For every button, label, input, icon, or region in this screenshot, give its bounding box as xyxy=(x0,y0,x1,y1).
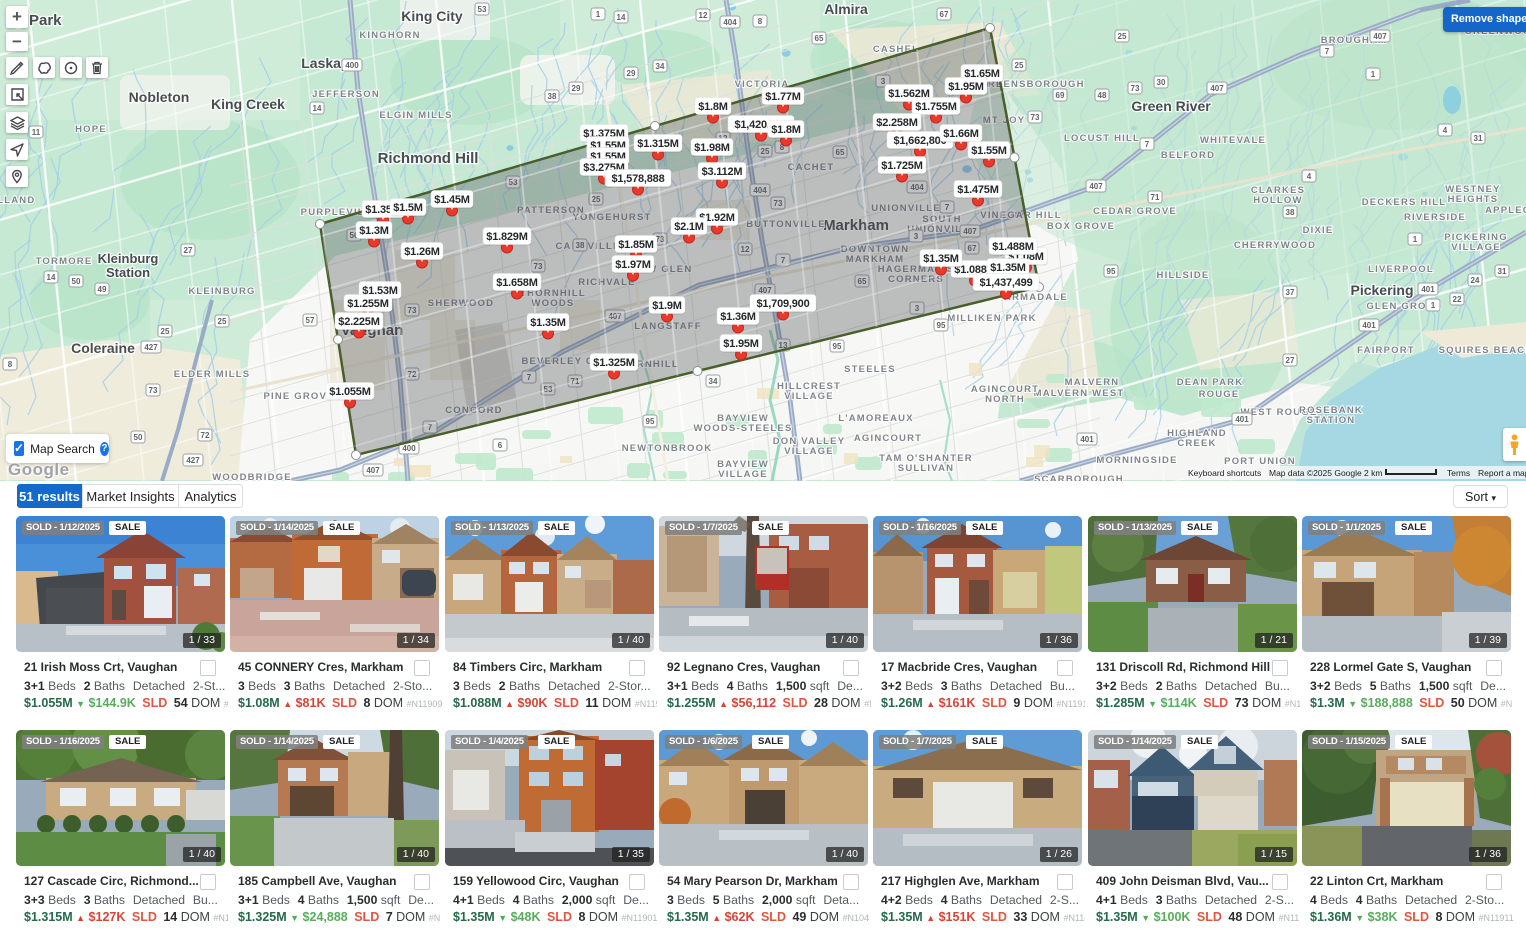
svg-text:HOLLAND: HOLLAND xyxy=(0,195,35,206)
svg-text:8: 8 xyxy=(8,360,13,369)
svg-text:53: 53 xyxy=(478,5,487,14)
svg-text:401: 401 xyxy=(1421,285,1435,294)
svg-text:1: 1 xyxy=(596,10,601,19)
svg-text:27: 27 xyxy=(1286,356,1295,365)
svg-text:SULLIVAN: SULLIVAN xyxy=(898,463,954,474)
svg-text:8: 8 xyxy=(758,17,763,26)
svg-text:FAIRPORT: FAIRPORT xyxy=(1357,345,1415,356)
svg-text:BELFORD: BELFORD xyxy=(1161,150,1215,161)
svg-text:29: 29 xyxy=(627,69,636,78)
svg-text:DECKERS HILL: DECKERS HILL xyxy=(1362,197,1447,208)
svg-text:ELGIN MILLS: ELGIN MILLS xyxy=(379,110,452,121)
svg-text:MORNINGSIDE: MORNINGSIDE xyxy=(1096,455,1177,466)
svg-text:MILLIKEN PARK: MILLIKEN PARK xyxy=(947,313,1036,324)
svg-text:Kleinburg: Kleinburg xyxy=(98,251,159,266)
svg-text:STATION: STATION xyxy=(1307,415,1356,426)
svg-text:King Creek: King Creek xyxy=(211,96,285,112)
svg-text:24: 24 xyxy=(1471,276,1480,285)
svg-text:25: 25 xyxy=(1015,61,1024,70)
svg-text:HEIGHTS: HEIGHTS xyxy=(1448,194,1499,205)
svg-text:Almira: Almira xyxy=(824,1,868,17)
svg-text:$1.35M: $1.35M xyxy=(530,317,566,329)
svg-text:$3.112M: $3.112M xyxy=(702,166,743,178)
svg-text:65: 65 xyxy=(815,34,824,43)
svg-text:SCARBOROUGH: SCARBOROUGH xyxy=(1034,474,1124,481)
svg-text:DIXIE: DIXIE xyxy=(1303,225,1334,236)
svg-text:AGINCOURT: AGINCOURT xyxy=(854,433,922,444)
svg-text:Green River: Green River xyxy=(1131,98,1211,114)
svg-text:Pickering: Pickering xyxy=(1350,282,1413,298)
svg-text:HOLLOW: HOLLOW xyxy=(1253,195,1302,206)
svg-text:CEDAR GROVE: CEDAR GROVE xyxy=(1093,206,1177,217)
svg-text:407: 407 xyxy=(1089,182,1103,191)
svg-text:L'AMOREAUX: L'AMOREAUX xyxy=(838,413,913,424)
svg-text:67: 67 xyxy=(940,10,949,19)
svg-text:CREEK: CREEK xyxy=(1177,438,1216,449)
svg-text:25: 25 xyxy=(161,327,170,336)
svg-text:Station: Station xyxy=(106,265,150,280)
svg-text:49: 49 xyxy=(98,285,107,294)
svg-text:22: 22 xyxy=(1453,295,1462,304)
svg-text:$1.95M: $1.95M xyxy=(948,81,984,93)
svg-text:1: 1 xyxy=(1371,70,1376,79)
svg-text:STEELES: STEELES xyxy=(844,364,896,375)
svg-text:KINGHORN: KINGHORN xyxy=(359,30,420,41)
svg-text:$1.55M: $1.55M xyxy=(971,145,1007,157)
svg-text:Coleraine: Coleraine xyxy=(71,340,135,356)
svg-text:WOODS-STEELES: WOODS-STEELES xyxy=(694,423,793,434)
svg-text:BOX GROVE: BOX GROVE xyxy=(1047,221,1115,232)
svg-text:407: 407 xyxy=(1210,84,1224,93)
svg-text:71: 71 xyxy=(1151,193,1160,202)
svg-text:400: 400 xyxy=(345,61,359,70)
svg-text:14: 14 xyxy=(313,104,322,113)
svg-text:$1.829M: $1.829M xyxy=(486,231,527,243)
svg-text:RIVERSIDE: RIVERSIDE xyxy=(1404,212,1466,223)
svg-text:73: 73 xyxy=(1131,84,1140,93)
svg-text:$1,662,800: $1,662,800 xyxy=(893,135,946,147)
svg-text:$1.97M: $1.97M xyxy=(615,259,651,271)
svg-text:VILLAGE: VILLAGE xyxy=(784,391,834,402)
svg-text:TORMORE: TORMORE xyxy=(36,256,93,267)
svg-text:$2.258M: $2.258M xyxy=(876,117,917,129)
svg-text:38: 38 xyxy=(548,92,557,101)
svg-text:$1.725M: $1.725M xyxy=(881,160,922,172)
svg-text:MALVERN WEST: MALVERN WEST xyxy=(1034,388,1125,399)
svg-text:50: 50 xyxy=(134,433,143,442)
svg-text:1: 1 xyxy=(1413,235,1418,244)
svg-text:$1.315M: $1.315M xyxy=(637,138,678,150)
svg-text:$2.225M: $2.225M xyxy=(338,316,379,328)
svg-text:King City: King City xyxy=(401,8,463,24)
svg-text:12: 12 xyxy=(699,11,708,20)
svg-text:$1.98M: $1.98M xyxy=(694,142,730,154)
svg-text:NORTH: NORTH xyxy=(985,394,1025,405)
svg-text:Richmond Hill: Richmond Hill xyxy=(378,150,479,167)
svg-text:404: 404 xyxy=(723,18,737,27)
svg-text:$1.77M: $1.77M xyxy=(765,91,801,103)
svg-text:95: 95 xyxy=(833,342,842,351)
svg-text:$1,437,499: $1,437,499 xyxy=(979,277,1032,289)
svg-text:6: 6 xyxy=(498,441,503,450)
svg-text:29: 29 xyxy=(572,84,581,93)
svg-text:14: 14 xyxy=(617,13,626,22)
svg-text:427: 427 xyxy=(144,343,158,352)
svg-text:$1,578,888: $1,578,888 xyxy=(611,173,664,185)
svg-text:SQUIRES BEACH: SQUIRES BEACH xyxy=(1439,345,1526,356)
svg-text:$1.325M: $1.325M xyxy=(593,357,634,369)
svg-text:427: 427 xyxy=(186,456,200,465)
svg-text:30: 30 xyxy=(1157,78,1166,87)
svg-text:VILLAGE: VILLAGE xyxy=(784,446,834,457)
svg-text:4: 4 xyxy=(1307,172,1312,181)
svg-text:ROUGE: ROUGE xyxy=(1199,389,1240,400)
svg-text:$1.35M: $1.35M xyxy=(923,253,959,265)
svg-text:VILLAGE: VILLAGE xyxy=(718,469,768,480)
svg-text:DEAN PARK: DEAN PARK xyxy=(1177,377,1244,388)
svg-text:HILLSIDE: HILLSIDE xyxy=(1157,270,1210,281)
svg-text:VILLAGE: VILLAGE xyxy=(1451,242,1501,253)
svg-text:400: 400 xyxy=(402,444,416,453)
svg-text:34: 34 xyxy=(709,377,718,386)
svg-text:$1.8M: $1.8M xyxy=(771,124,801,136)
svg-text:72: 72 xyxy=(201,431,210,440)
svg-text:1: 1 xyxy=(1431,301,1436,310)
svg-text:$1.658M: $1.658M xyxy=(496,277,537,289)
svg-text:11: 11 xyxy=(32,128,41,137)
svg-text:MALVERN: MALVERN xyxy=(1065,377,1120,388)
svg-text:ELDER MILLS: ELDER MILLS xyxy=(174,369,251,380)
svg-text:7: 7 xyxy=(1325,47,1330,56)
svg-text:JEFFERSON: JEFFERSON xyxy=(312,89,380,100)
svg-text:73: 73 xyxy=(1031,113,1040,122)
svg-text:$1.8M: $1.8M xyxy=(698,101,728,113)
svg-text:$1.45M: $1.45M xyxy=(434,194,470,206)
svg-text:APPLECR: APPLECR xyxy=(1485,205,1526,216)
svg-text:25: 25 xyxy=(218,317,227,326)
svg-text:37: 37 xyxy=(1286,288,1295,297)
svg-text:31: 31 xyxy=(1498,267,1507,276)
svg-text:38: 38 xyxy=(1286,208,1295,217)
svg-text:73: 73 xyxy=(149,386,158,395)
svg-text:LIVERPOOL: LIVERPOOL xyxy=(1368,264,1434,275)
svg-text:14: 14 xyxy=(47,273,56,282)
svg-text:$1.66M: $1.66M xyxy=(943,128,979,140)
svg-text:$1.26M: $1.26M xyxy=(404,246,440,258)
svg-text:34: 34 xyxy=(656,62,665,71)
svg-text:401: 401 xyxy=(1362,321,1376,330)
svg-text:WHITEVALE: WHITEVALE xyxy=(1200,135,1266,146)
svg-text:401: 401 xyxy=(1235,415,1249,424)
svg-text:$1.055M: $1.055M xyxy=(329,386,370,398)
svg-text:$1.488M: $1.488M xyxy=(992,241,1033,253)
svg-text:CHERRYWOOD: CHERRYWOOD xyxy=(1234,240,1316,251)
svg-text:57: 57 xyxy=(306,316,315,325)
svg-text:$1.95M: $1.95M xyxy=(723,338,759,350)
svg-text:$1.9M: $1.9M xyxy=(652,300,682,312)
svg-text:95: 95 xyxy=(1107,267,1116,276)
svg-text:401: 401 xyxy=(1080,435,1094,444)
svg-text:$1.255M: $1.255M xyxy=(347,298,388,310)
svg-text:WOODBRIDGE: WOODBRIDGE xyxy=(212,472,292,481)
svg-text:7: 7 xyxy=(1145,140,1150,149)
svg-text:$1.35M: $1.35M xyxy=(990,262,1026,274)
svg-text:Nobleton: Nobleton xyxy=(129,89,190,105)
svg-text:407: 407 xyxy=(1373,32,1387,41)
svg-text:$1.36M: $1.36M xyxy=(720,311,756,323)
svg-text:27: 27 xyxy=(184,246,193,255)
svg-text:95: 95 xyxy=(937,321,946,330)
svg-text:HOPE: HOPE xyxy=(75,124,107,135)
svg-text:$1.755M: $1.755M xyxy=(915,101,956,113)
svg-text:$1.5M: $1.5M xyxy=(393,202,423,214)
svg-text:$1.3M: $1.3M xyxy=(359,225,389,237)
svg-text:$1.85M: $1.85M xyxy=(618,239,654,251)
svg-text:4: 4 xyxy=(1443,126,1448,135)
svg-text:50: 50 xyxy=(72,277,81,286)
svg-text:$1,709,900: $1,709,900 xyxy=(756,298,809,310)
svg-text:NEWTONBROOK: NEWTONBROOK xyxy=(622,443,713,454)
svg-text:69: 69 xyxy=(1056,91,1065,100)
svg-text:25: 25 xyxy=(1118,32,1127,41)
svg-text:LOCUST HILL: LOCUST HILL xyxy=(1064,133,1140,144)
svg-text:KLEINBURG: KLEINBURG xyxy=(188,286,255,297)
svg-text:95: 95 xyxy=(646,417,655,426)
svg-text:31: 31 xyxy=(1474,134,1483,143)
svg-text:PINE GROVE: PINE GROVE xyxy=(263,391,334,402)
svg-text:48: 48 xyxy=(1098,91,1107,100)
svg-text:407: 407 xyxy=(366,466,380,475)
svg-text:$1.475M: $1.475M xyxy=(957,184,998,196)
svg-text:$2.1M: $2.1M xyxy=(674,221,704,233)
